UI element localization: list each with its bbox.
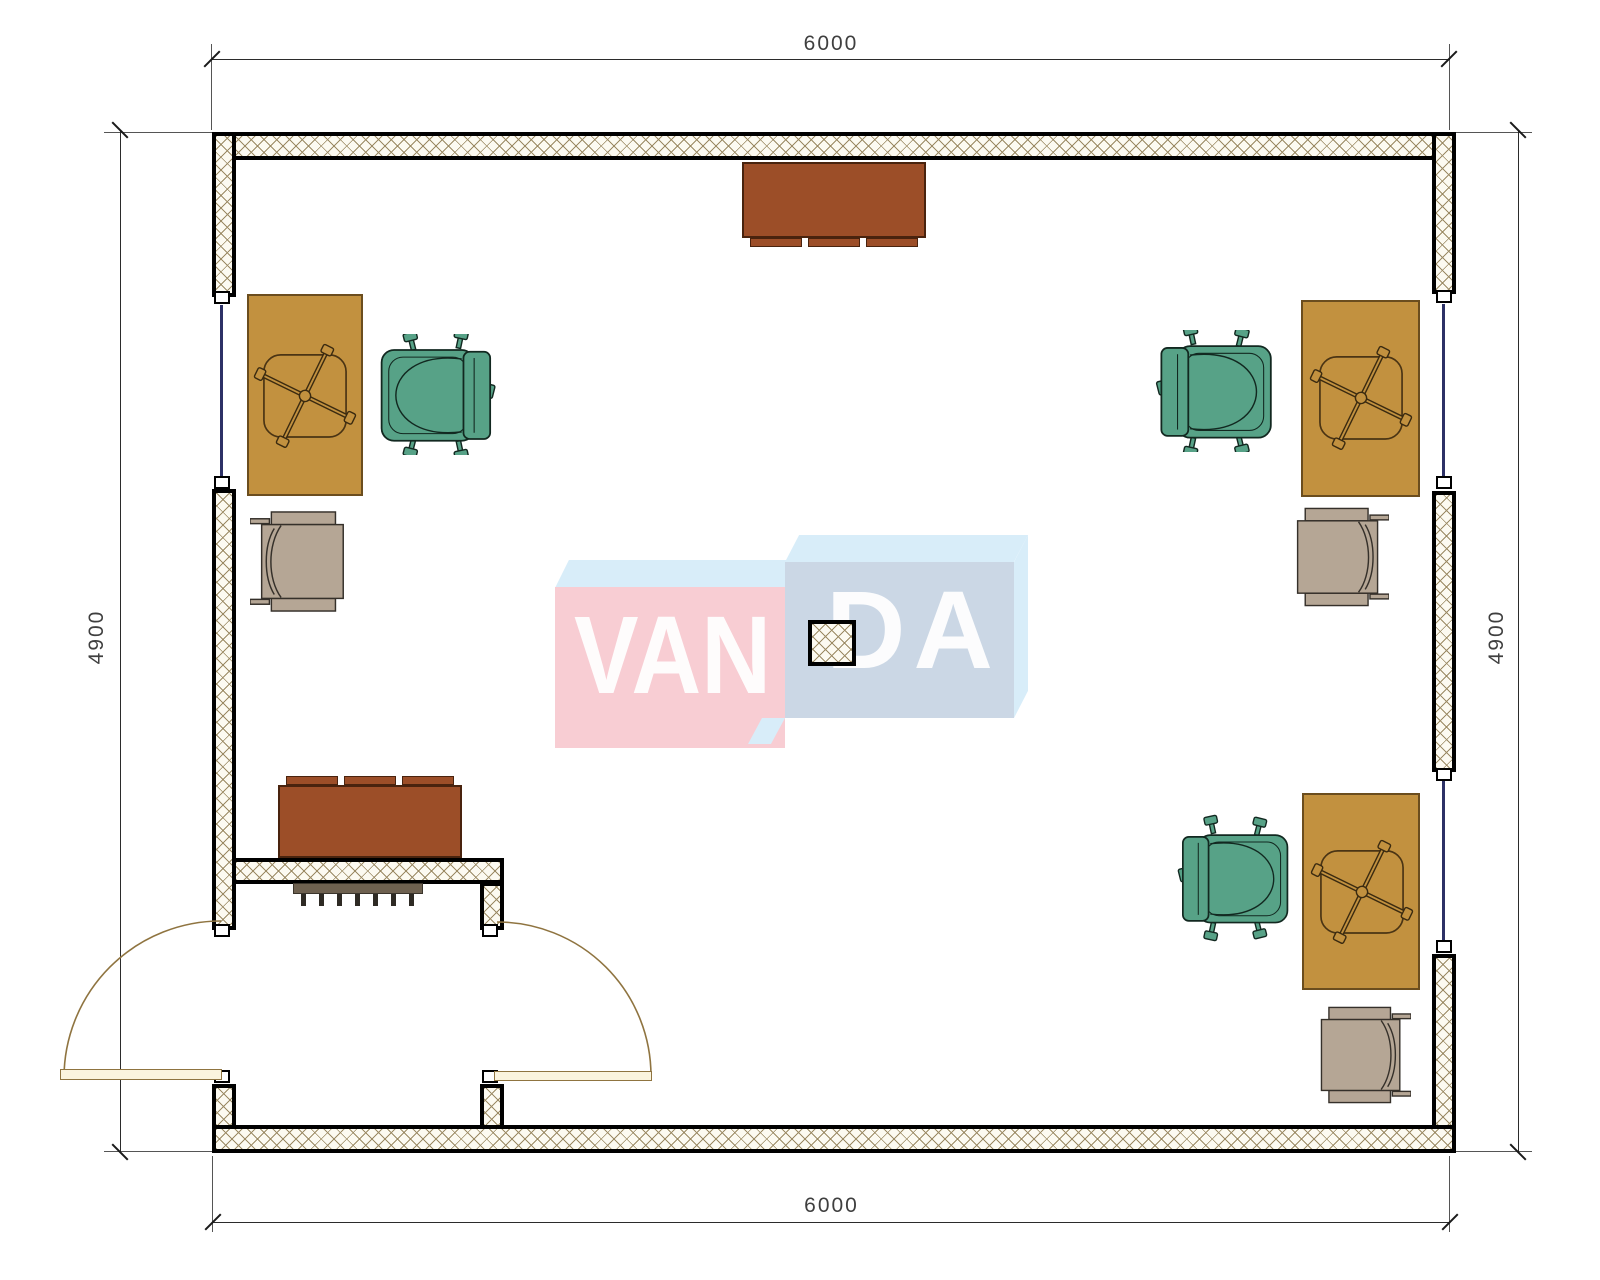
radiator-fin <box>337 894 342 906</box>
cabinet-entry-body <box>278 785 462 858</box>
guest-chair-top-left <box>250 511 351 612</box>
chair-base-icon <box>1305 335 1417 459</box>
radiator-fin <box>373 894 378 906</box>
radiator-fin <box>391 894 396 906</box>
task-chair-top-right <box>1150 330 1284 452</box>
door-swing-arc-left <box>64 921 221 1078</box>
cabinet-top-door <box>866 238 918 247</box>
cabinet-entry-door <box>286 776 338 785</box>
door-swing-arc-right <box>497 922 651 1076</box>
radiator-fin <box>409 894 414 906</box>
cabinet-entry-door <box>402 776 454 785</box>
chair-base-icon <box>1306 829 1418 953</box>
cabinet-top-door <box>750 238 802 247</box>
radiator-fin <box>355 894 360 906</box>
radiator-fin <box>301 894 306 906</box>
cabinet-top-door <box>808 238 860 247</box>
cabinet-top-body <box>742 162 926 238</box>
cabinet-entry-door <box>344 776 396 785</box>
chair-base-icon <box>249 333 361 457</box>
door-leaf-left <box>60 1069 222 1080</box>
task-chair-bottom-right <box>1176 810 1296 946</box>
floor-plan: VAN DA <box>0 0 1600 1280</box>
guest-chair-top-right <box>1290 506 1389 608</box>
task-chair-top-left <box>368 334 502 455</box>
guest-chair-bottom-right <box>1314 1002 1411 1108</box>
radiator-fin <box>319 894 324 906</box>
door-leaf-right <box>494 1071 652 1081</box>
